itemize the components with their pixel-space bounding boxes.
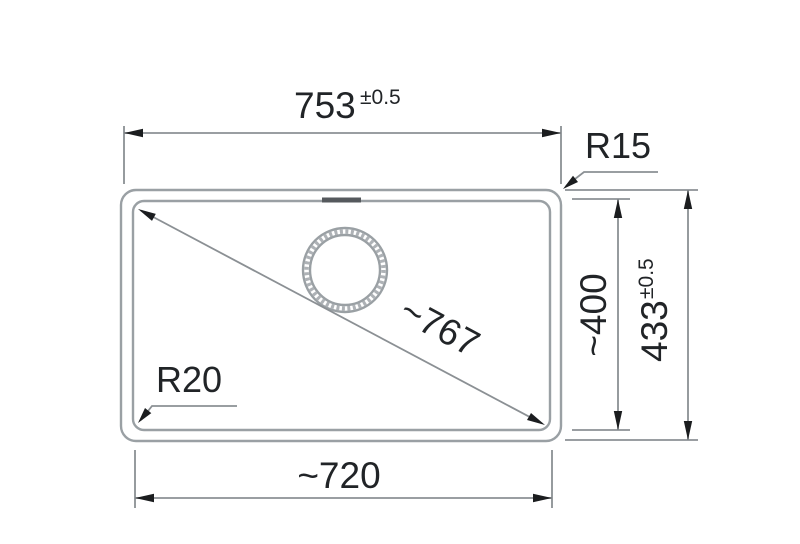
arrowhead-up-icon bbox=[614, 199, 622, 218]
drain-hole-hatch-ring bbox=[307, 232, 384, 309]
dim-bottom-width-value: ~720 bbox=[297, 455, 380, 496]
overflow-slot bbox=[322, 198, 361, 203]
radius-bottom-left-label: R20 bbox=[156, 359, 222, 400]
arrowhead-diagonal-topleft-icon bbox=[138, 209, 156, 221]
technical-drawing-canvas: 753 ±0.5 R15 ~767 R20 bbox=[0, 0, 800, 544]
arrowhead-left-icon bbox=[135, 494, 154, 502]
arrowhead-diagonal-bottomright-icon bbox=[527, 413, 545, 425]
drain-hole-inner-circle bbox=[310, 235, 380, 305]
sink-dimension-drawing: 753 ±0.5 R15 ~767 R20 bbox=[0, 0, 800, 544]
arrowhead-down-icon bbox=[684, 421, 692, 440]
arrowhead-up-icon bbox=[684, 190, 692, 209]
callout-radius-top-right: R15 bbox=[563, 125, 658, 189]
drain-hole-outer-circle bbox=[303, 228, 387, 312]
dim-top-width: 753 ±0.5 bbox=[124, 85, 561, 184]
arrowhead-right-icon bbox=[533, 494, 552, 502]
arrowhead-left-icon bbox=[124, 129, 143, 137]
arrowhead-right-icon bbox=[542, 129, 561, 137]
dim-diagonal-value: ~767 bbox=[393, 289, 486, 364]
dim-top-width-tolerance: ±0.5 bbox=[360, 86, 401, 109]
radius-top-right-label: R15 bbox=[585, 125, 651, 166]
dim-outer-height-value: 433 bbox=[634, 300, 675, 362]
dim-outer-height-tolerance: ±0.5 bbox=[635, 258, 658, 299]
radius-bottom-left-leader-line bbox=[141, 406, 237, 420]
arrowhead-down-icon bbox=[614, 411, 622, 430]
dim-inner-height: ~400 bbox=[572, 199, 630, 430]
sink-body bbox=[121, 190, 561, 441]
dim-bottom-width: ~720 bbox=[135, 450, 552, 508]
dim-top-width-value: 753 bbox=[294, 85, 356, 126]
dim-outer-height-label-group: 433 ±0.5 bbox=[634, 258, 675, 362]
callout-radius-bottom-left: R20 bbox=[138, 359, 237, 423]
dim-inner-height-value: ~400 bbox=[573, 273, 614, 356]
radius-top-right-leader-line bbox=[566, 172, 658, 186]
